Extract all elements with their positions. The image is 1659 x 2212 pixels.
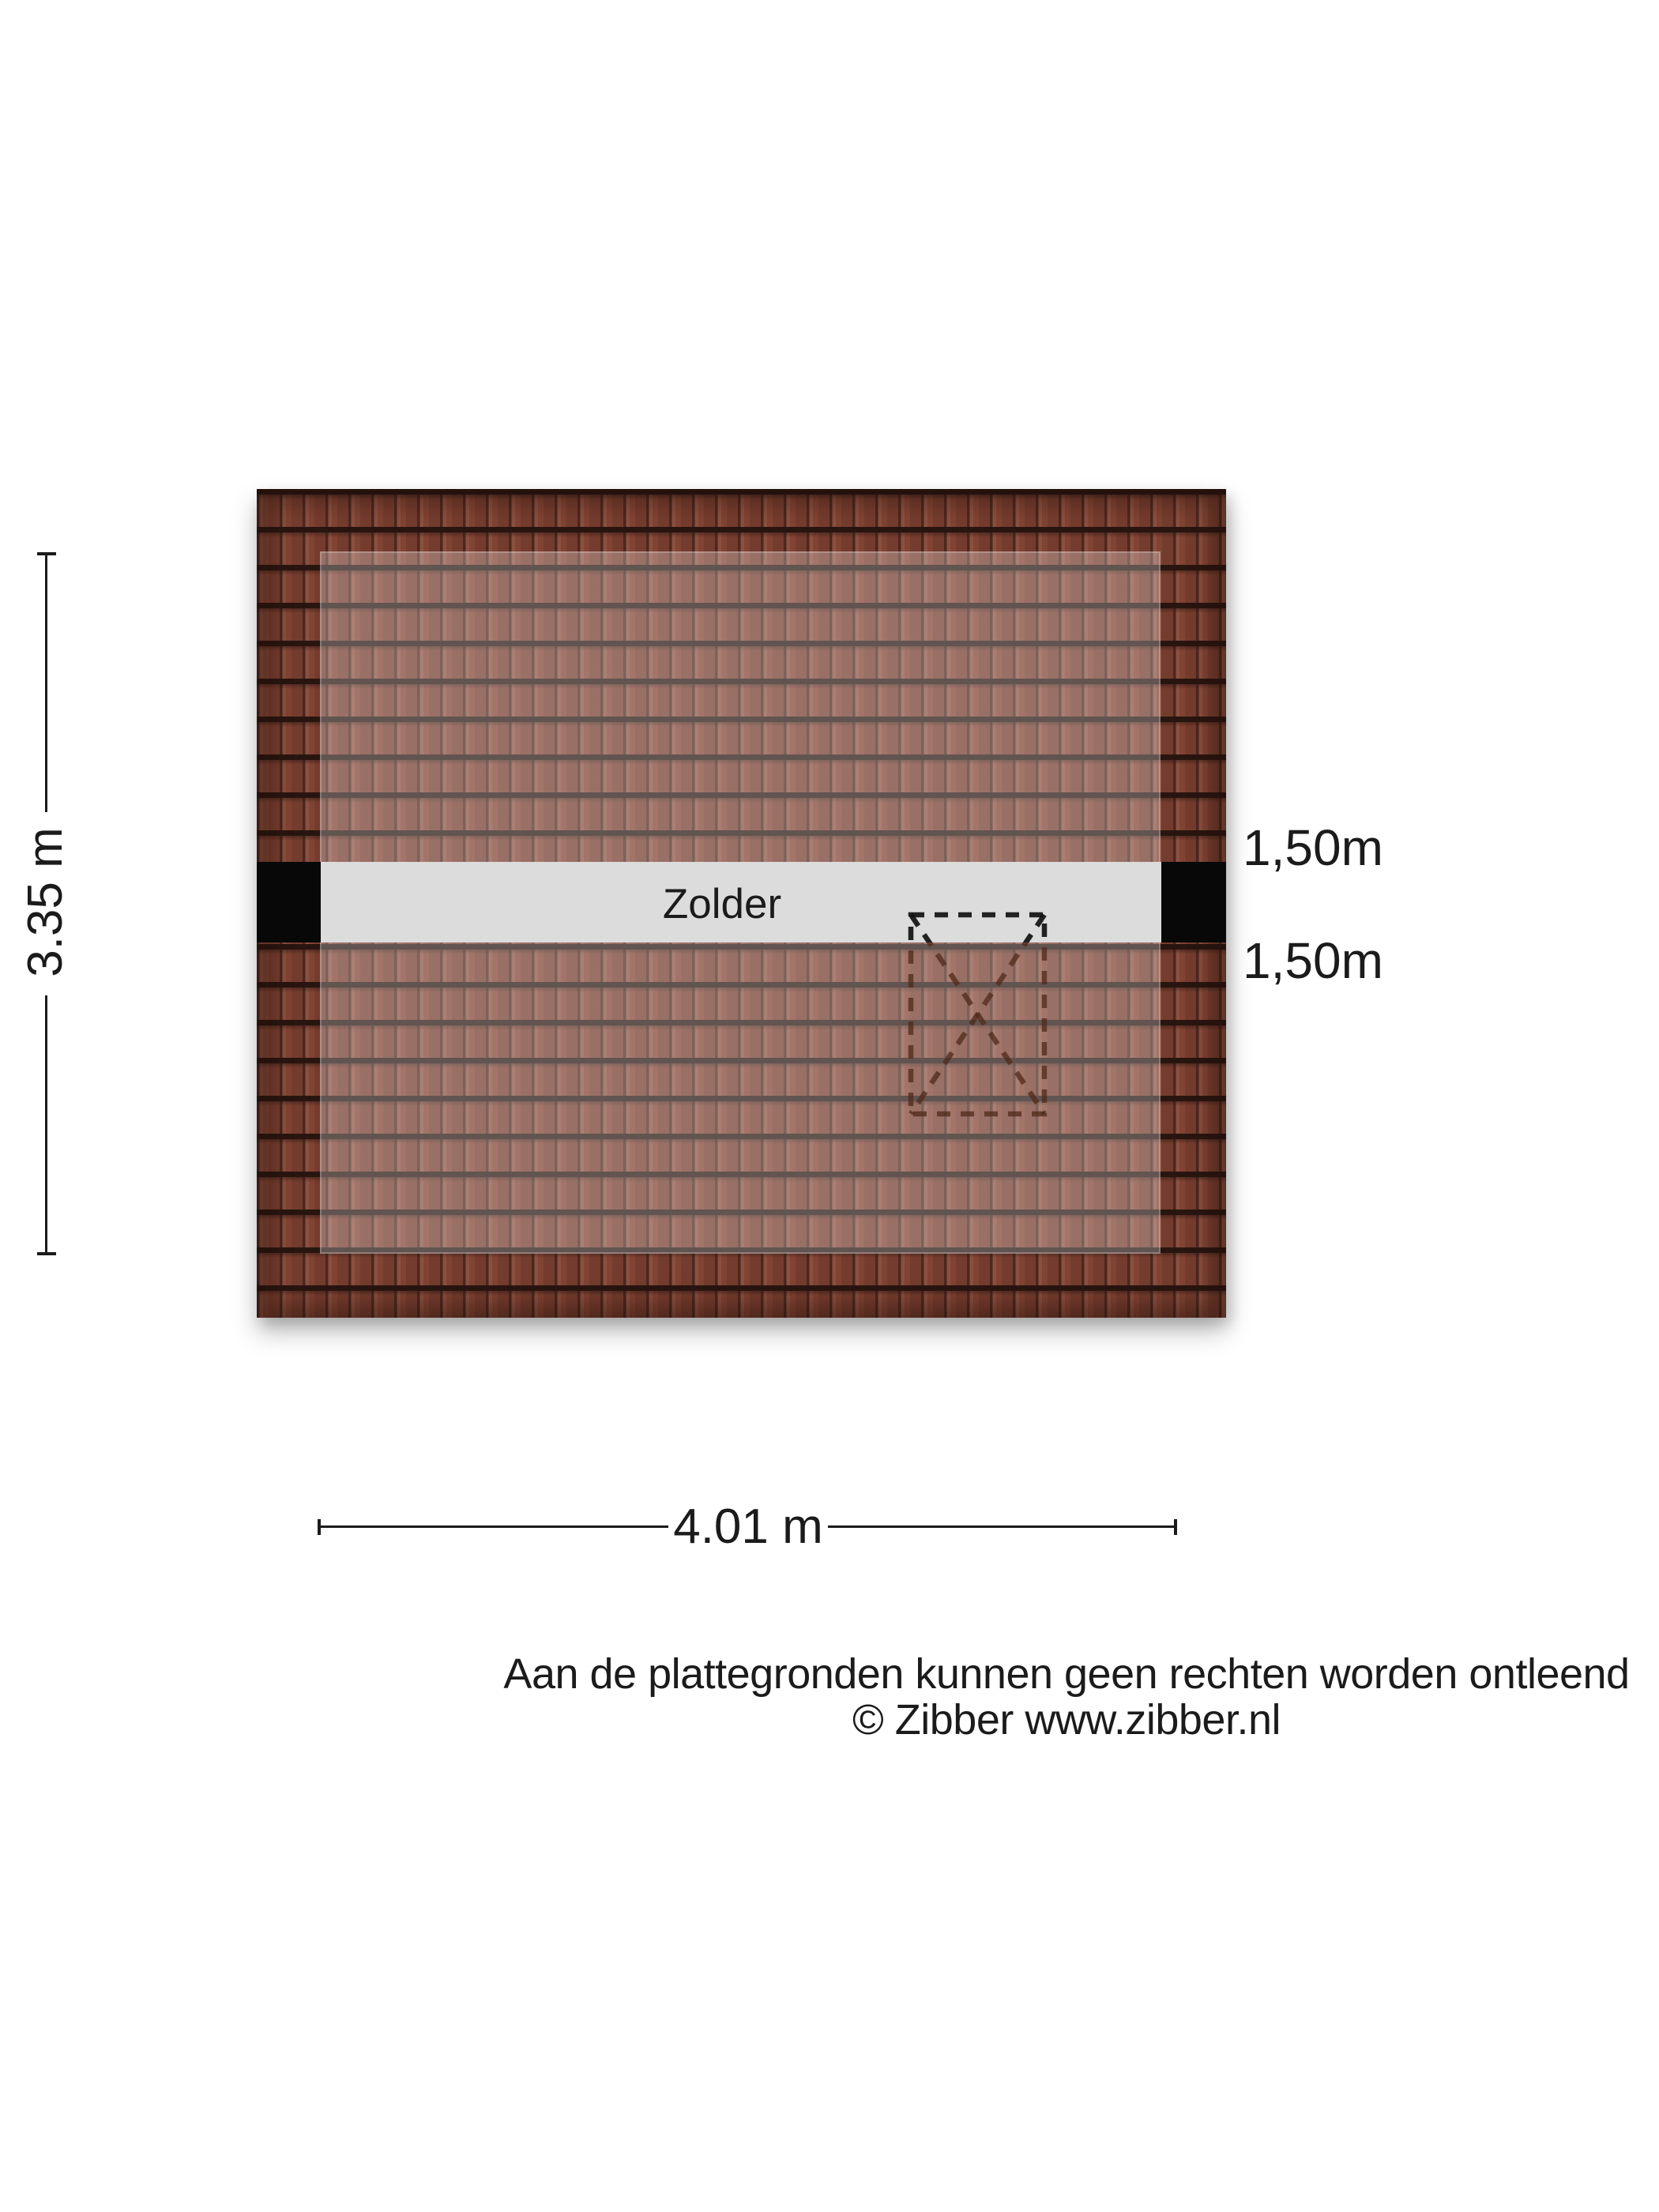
height-dimension-tick-bottom bbox=[37, 1252, 56, 1255]
knee-wall-block-left bbox=[257, 862, 321, 942]
width-dimension-tick-right bbox=[1174, 1519, 1177, 1535]
height-dimension-tick-top bbox=[37, 552, 56, 555]
dashed-outline-roof-part bbox=[911, 915, 1044, 1114]
width-dimension-line-left bbox=[319, 1525, 668, 1528]
footer-disclaimer: Aan de plattegronden kunnen geen rechten… bbox=[503, 1651, 1629, 1743]
width-dimension-line-right bbox=[828, 1525, 1177, 1528]
height-dimension-line-upper bbox=[45, 554, 47, 812]
disclaimer-line: Aan de plattegronden kunnen geen rechten… bbox=[503, 1651, 1629, 1697]
width-dimension-label: 4.01 m bbox=[673, 1503, 823, 1552]
height-dimension-label: 3.35 m bbox=[21, 827, 70, 977]
roof-window-dashed-outline bbox=[905, 908, 1051, 1122]
headroom-label-bottom: 1,50m bbox=[1243, 935, 1383, 986]
room-label: Zolder bbox=[663, 883, 781, 925]
height-dimension-line-lower bbox=[45, 995, 47, 1255]
copyright-line: © Zibber www.zibber.nl bbox=[503, 1697, 1629, 1743]
floorplan-page: Zolder 1,50m 1,50m 3.35 m 4.01 m Aan de … bbox=[0, 0, 1659, 2212]
headroom-label-top: 1,50m bbox=[1243, 822, 1383, 873]
width-dimension-tick-left bbox=[318, 1519, 321, 1535]
knee-wall-block-right bbox=[1161, 862, 1226, 942]
